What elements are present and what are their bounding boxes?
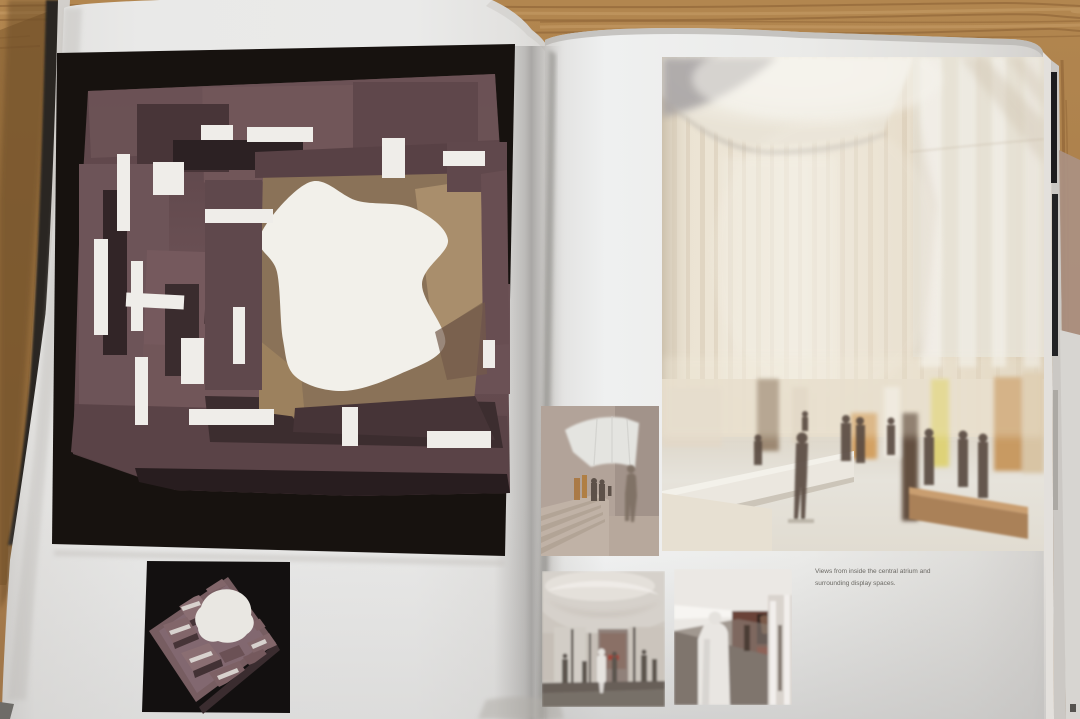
svg-text:Views from inside the central: Views from inside the central atrium and: [815, 568, 931, 575]
svg-text:surrounding display spaces.: surrounding display spaces.: [815, 580, 896, 587]
